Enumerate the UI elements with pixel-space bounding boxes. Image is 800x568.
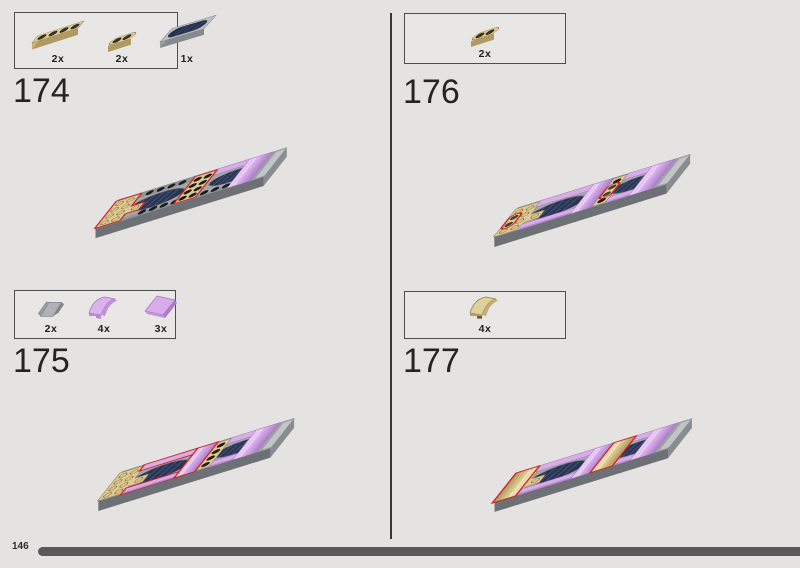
part-qty: 2x bbox=[116, 53, 129, 65]
step-number-177: 177 bbox=[403, 344, 460, 378]
assembly-step-176 bbox=[460, 124, 718, 268]
step-number-174: 174 bbox=[13, 74, 70, 108]
assembly-step-177 bbox=[460, 388, 720, 534]
part-qty: 2x bbox=[52, 53, 65, 65]
base-plate bbox=[94, 148, 287, 239]
instruction-page: 2x 2x bbox=[0, 0, 800, 568]
base-plate bbox=[97, 418, 294, 511]
plate-1x2-rounded-tan-icon bbox=[465, 14, 505, 48]
part-entry: 2x bbox=[35, 291, 67, 335]
part-entry: 4x bbox=[465, 291, 505, 335]
step-number-175: 175 bbox=[13, 344, 70, 378]
parts-box-176: 2x bbox=[404, 13, 566, 64]
part-entry: 2x bbox=[465, 14, 505, 60]
part-qty: 2x bbox=[45, 323, 58, 335]
curved-slope-tan-icon bbox=[465, 291, 505, 323]
parts-box-177: 4x bbox=[404, 291, 566, 339]
base-plate bbox=[493, 154, 690, 247]
part-entry: 3x bbox=[141, 289, 181, 335]
part-entry: 2x bbox=[102, 19, 142, 65]
part-qty: 4x bbox=[479, 323, 492, 335]
parts-box-174: 2x 2x bbox=[14, 12, 178, 69]
part-qty: 1x bbox=[181, 53, 194, 65]
slope-tile-lavender-icon bbox=[141, 289, 181, 323]
part-entry: 1x bbox=[155, 5, 219, 65]
parts-box-175: 2x 4x 3x bbox=[14, 290, 176, 339]
tile-2x4-dark-print-icon bbox=[155, 5, 219, 53]
plate-1x4-tan-icon bbox=[27, 9, 89, 53]
part-qty: 3x bbox=[155, 323, 168, 335]
part-entry: 4x bbox=[84, 291, 124, 335]
base-plate bbox=[492, 419, 692, 512]
assembly-step-175 bbox=[64, 388, 322, 532]
page-number: 146 bbox=[12, 541, 29, 552]
curved-slope-lavender-icon bbox=[84, 291, 124, 323]
part-entry: 2x bbox=[27, 9, 89, 65]
progress-bar bbox=[38, 547, 800, 556]
plate-1x2-rounded-tan-icon bbox=[102, 19, 142, 53]
part-qty: 2x bbox=[479, 48, 492, 60]
column-divider bbox=[390, 13, 392, 539]
part-qty: 4x bbox=[98, 323, 111, 335]
slope-1x1-gray-icon bbox=[35, 291, 67, 323]
assembly-step-174 bbox=[62, 118, 314, 259]
step-number-176: 176 bbox=[403, 75, 460, 109]
